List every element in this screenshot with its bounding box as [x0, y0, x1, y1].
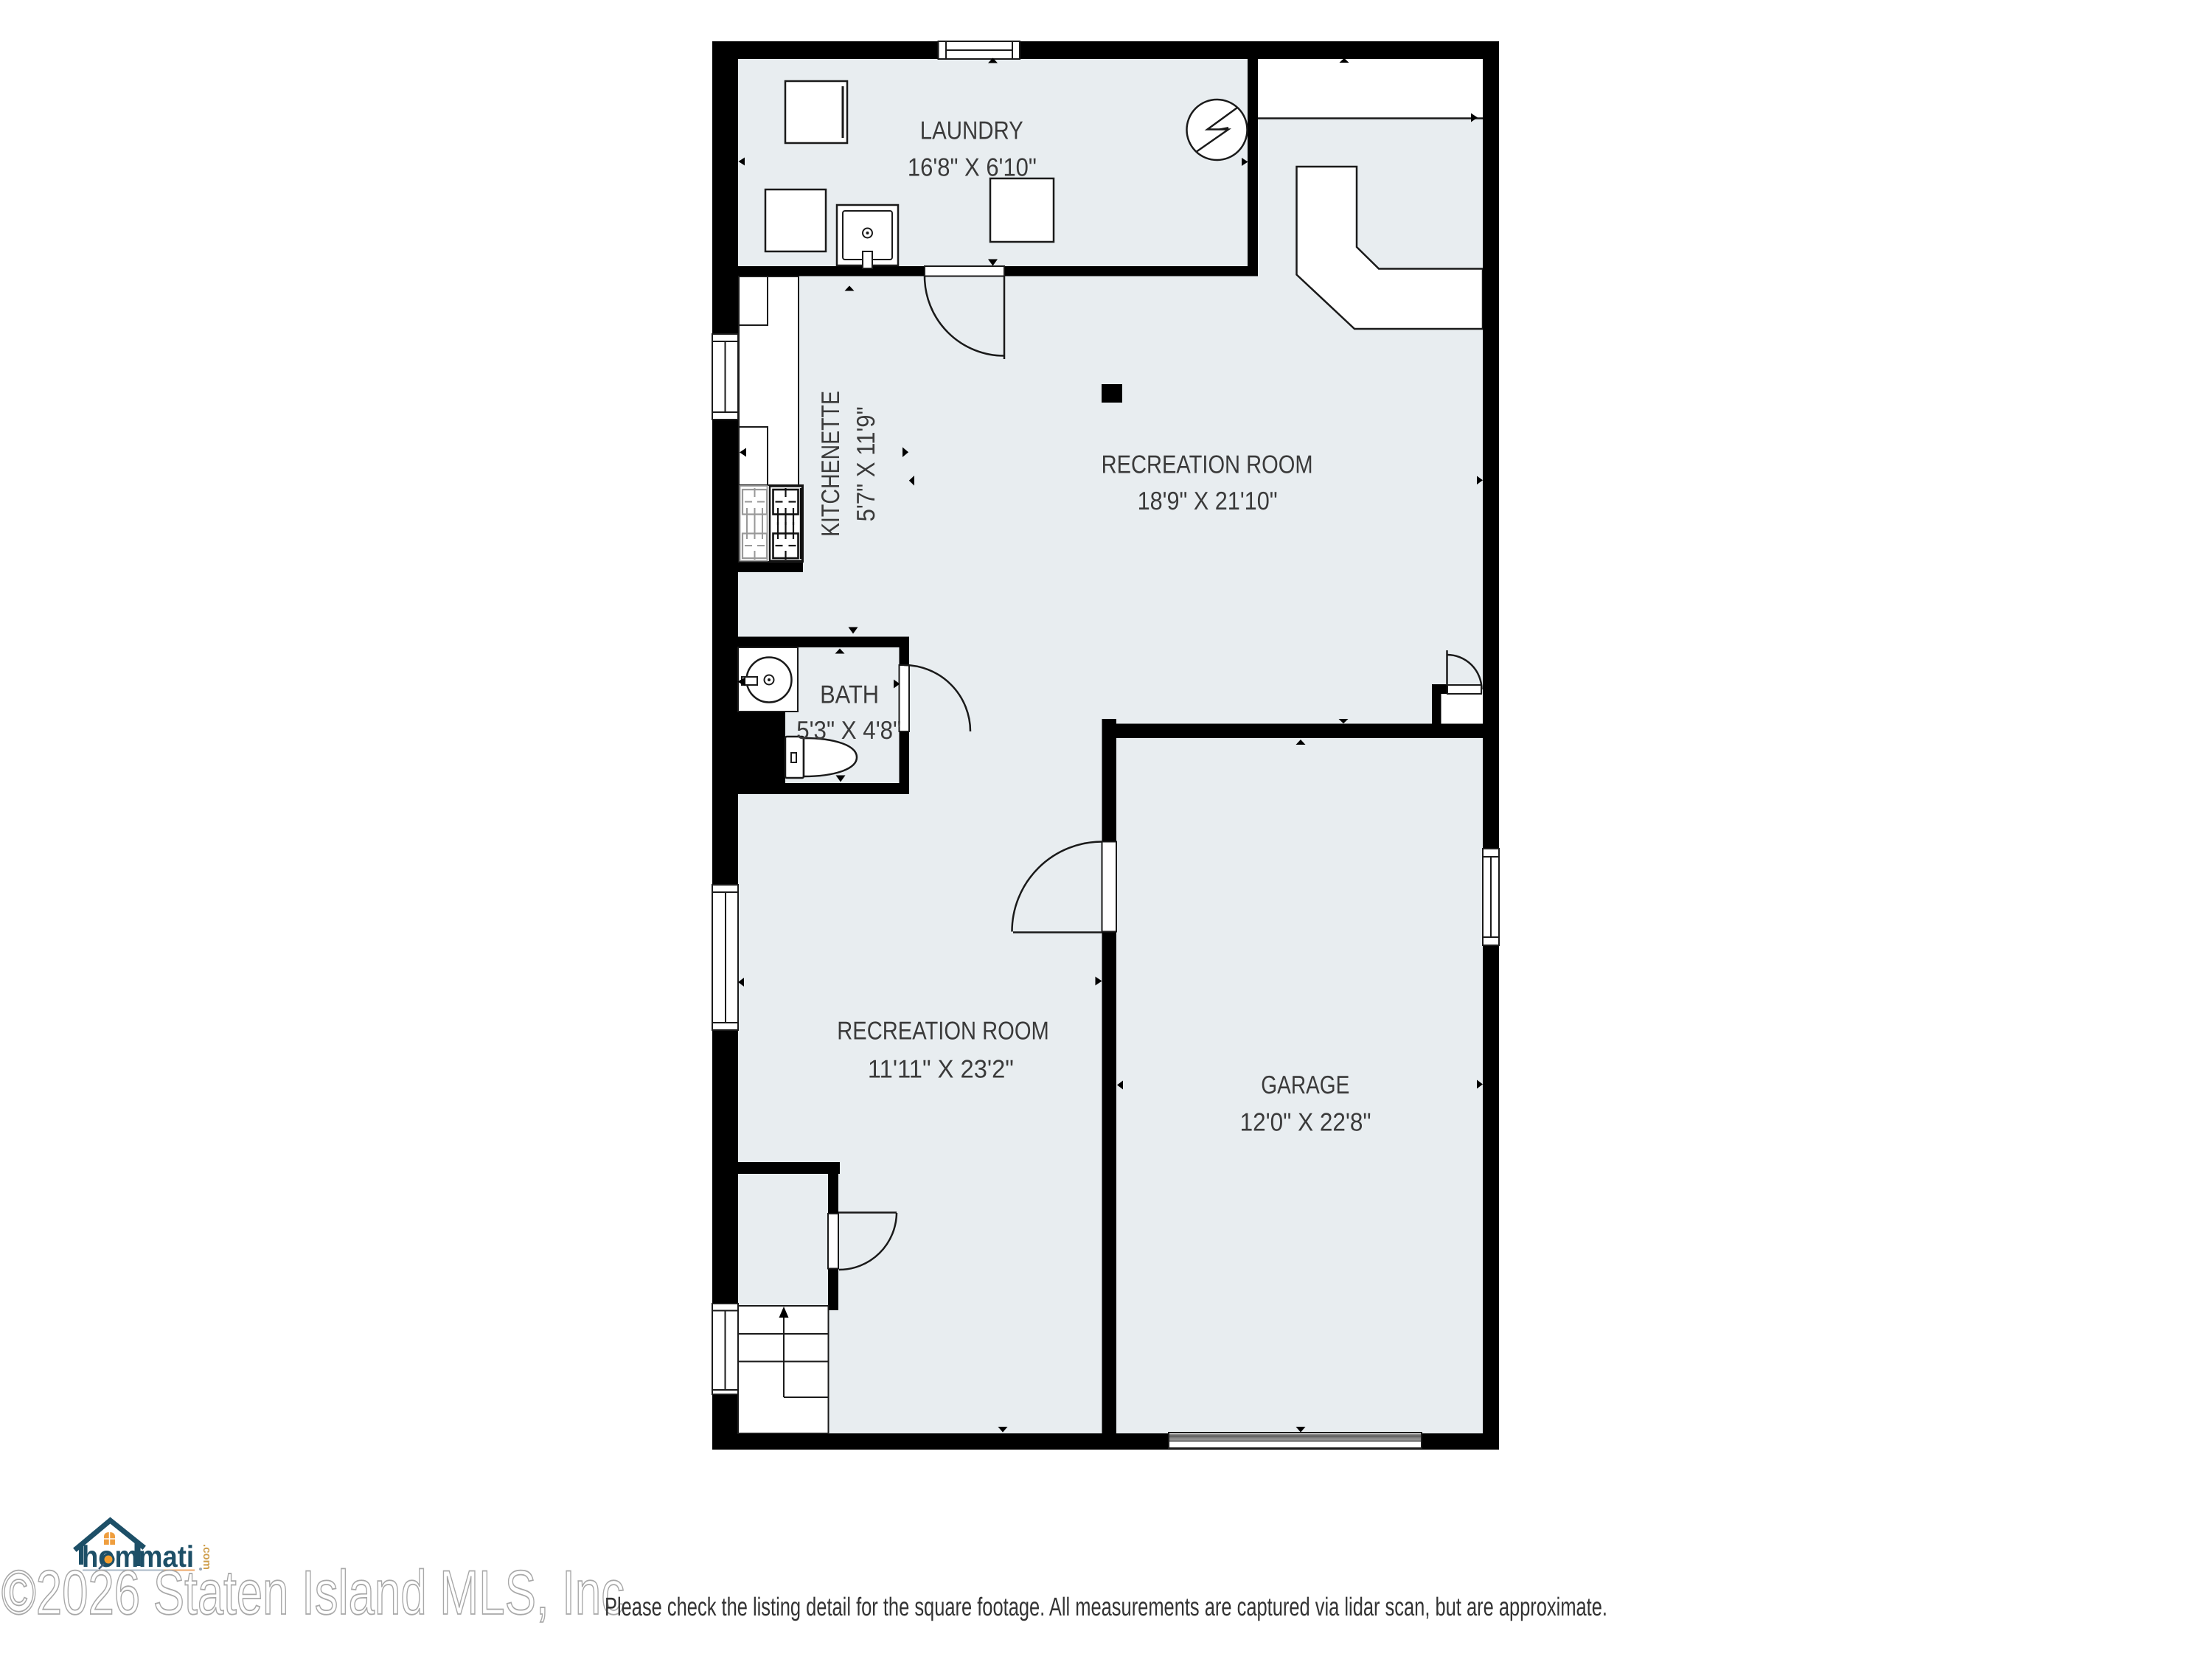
svg-text:GARAGE: GARAGE [1261, 1071, 1349, 1099]
svg-text:LAUNDRY: LAUNDRY [920, 117, 1023, 145]
svg-text:BATH: BATH [820, 681, 879, 709]
svg-text:RECREATION ROOM: RECREATION ROOM [837, 1018, 1049, 1046]
svg-text:16'8" X 6'10": 16'8" X 6'10" [908, 153, 1037, 181]
svg-text:5'3" X 4'8": 5'3" X 4'8" [796, 717, 901, 745]
svg-text:©2026 Staten Island MLS, Inc: ©2026 Staten Island MLS, Inc [1, 1558, 625, 1628]
svg-text:12'0" X 22'8": 12'0" X 22'8" [1240, 1109, 1371, 1137]
svg-text:RECREATION ROOM: RECREATION ROOM [1102, 451, 1313, 479]
svg-text:11'11" X 23'2": 11'11" X 23'2" [868, 1055, 1014, 1083]
svg-text:Please check the listing detai: Please check the listing detail for the … [605, 1593, 1607, 1621]
svg-text:18'9" X 21'10": 18'9" X 21'10" [1138, 487, 1278, 515]
svg-text:KITCHENETTE: KITCHENETTE [817, 391, 845, 537]
svg-text:5'7" X 11'9": 5'7" X 11'9" [852, 406, 880, 521]
